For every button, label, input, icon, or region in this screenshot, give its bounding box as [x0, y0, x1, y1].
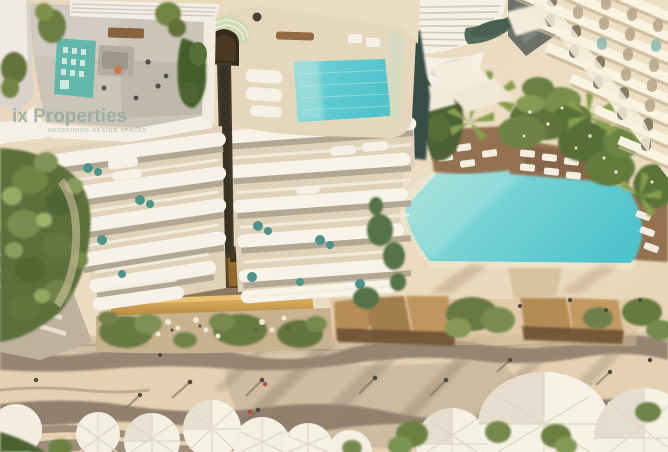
svg-text:ix Properties: ix Properties [12, 106, 127, 127]
svg-text:REDEFINING DESIGN SPACES: REDEFINING DESIGN SPACES [48, 128, 147, 134]
